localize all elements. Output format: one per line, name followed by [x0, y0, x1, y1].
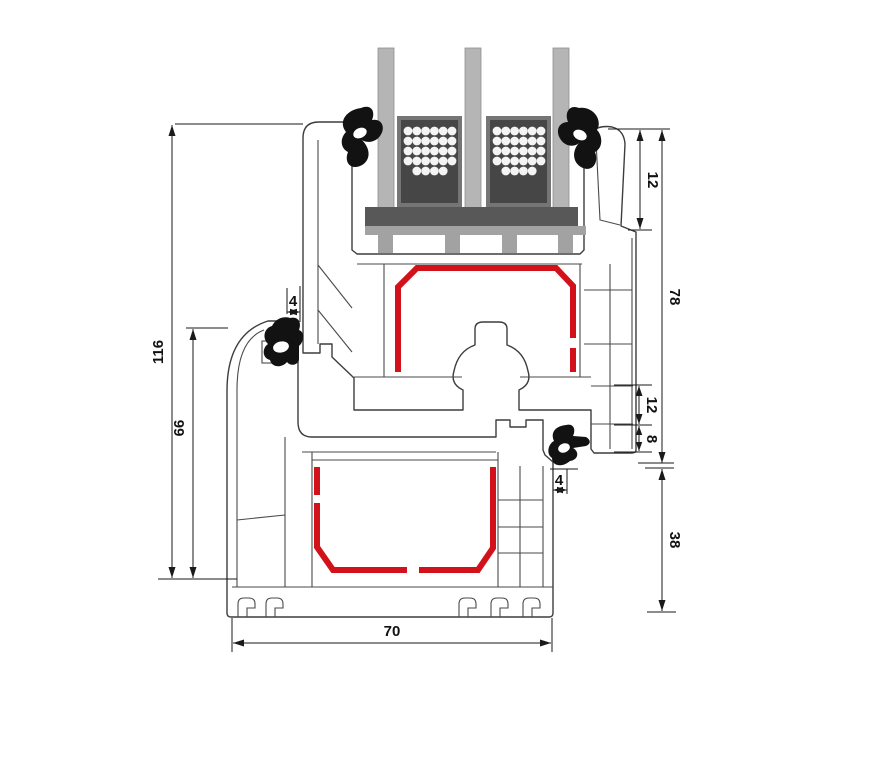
desiccant-dot — [439, 157, 448, 166]
desiccant-dot — [510, 147, 519, 156]
desiccant-dot — [448, 137, 457, 146]
glazing-packer — [558, 235, 573, 253]
desiccant-dot — [537, 157, 546, 166]
dim-label-12-mid: 12 — [643, 397, 660, 414]
desiccant-dot — [412, 127, 421, 136]
desiccant-dot — [493, 157, 502, 166]
desiccant-dot — [501, 127, 510, 136]
desiccant-dot — [412, 157, 421, 166]
desiccant-dot — [448, 127, 457, 136]
dim-label-4-bottom: 4 — [555, 472, 564, 489]
desiccant-dot — [430, 167, 439, 176]
desiccant-dot — [519, 147, 528, 156]
desiccant-dot — [439, 147, 448, 156]
desiccant-dot — [439, 127, 448, 136]
desiccant-dot — [439, 137, 448, 146]
desiccant-dot — [510, 137, 519, 146]
desiccant-dot — [519, 167, 528, 176]
desiccant-dot — [421, 147, 430, 156]
desiccant-dot — [430, 157, 439, 166]
dimension-top-gasket-gap: 4 — [287, 286, 300, 322]
desiccant-dot — [412, 137, 421, 146]
desiccant-dot — [528, 167, 537, 176]
desiccant-dot — [537, 147, 546, 156]
desiccant-dot — [501, 157, 510, 166]
desiccant-dot — [528, 137, 537, 146]
dimension-profile-depth: 70 — [232, 618, 552, 652]
desiccant-dot — [404, 127, 413, 136]
dim-label-66: 66 — [171, 420, 188, 437]
glazing-bridge — [365, 226, 586, 235]
dim-label-4-top: 4 — [289, 293, 298, 310]
desiccant-dot — [501, 137, 510, 146]
desiccant-dot — [493, 127, 502, 136]
desiccant-dot — [493, 147, 502, 156]
glazing-unit — [365, 48, 586, 253]
desiccant-dot — [412, 147, 421, 156]
desiccant-dot — [412, 167, 421, 176]
desiccant-dot — [421, 137, 430, 146]
desiccant-dot — [404, 157, 413, 166]
desiccant-dot — [510, 157, 519, 166]
desiccant-dot — [404, 147, 413, 156]
desiccant-dot — [519, 157, 528, 166]
dimension-frame-outer-height: 38 — [645, 468, 683, 612]
desiccant-dot — [439, 167, 448, 176]
desiccant-dot — [501, 147, 510, 156]
desiccant-dot — [519, 127, 528, 136]
desiccant-dot — [528, 127, 537, 136]
desiccant-dot — [519, 137, 528, 146]
desiccant-dot — [448, 157, 457, 166]
dimension-bottom-gasket-gap: 4 — [550, 469, 578, 494]
desiccant-dot — [448, 147, 457, 156]
dim-label-12-top: 12 — [644, 172, 661, 189]
glass-pane-middle — [465, 48, 481, 210]
desiccant-dot — [421, 127, 430, 136]
desiccant-dot — [421, 167, 430, 176]
dim-label-78: 78 — [666, 289, 683, 306]
glazing-packer — [502, 235, 517, 253]
desiccant-dot — [528, 147, 537, 156]
window-cross-section-diagram: 116 66 4 12 — [0, 0, 877, 766]
desiccant-dot — [421, 157, 430, 166]
desiccant-dot — [510, 127, 519, 136]
desiccant-dot — [430, 147, 439, 156]
desiccant-dot — [430, 127, 439, 136]
window-cross-section-page: 116 66 4 12 — [0, 0, 877, 766]
dim-label-8: 8 — [643, 435, 660, 443]
desiccant-dot — [501, 167, 510, 176]
desiccant-dot — [493, 137, 502, 146]
desiccant-dot — [404, 137, 413, 146]
desiccant-dot — [510, 167, 519, 176]
dim-label-116: 116 — [150, 340, 167, 364]
desiccant-dot — [537, 127, 546, 136]
dim-label-38: 38 — [666, 532, 683, 549]
glazing-packer — [378, 235, 393, 253]
desiccant-dot — [537, 137, 546, 146]
desiccant-dot — [528, 157, 537, 166]
dimension-frame-height: 66 — [171, 328, 228, 578]
desiccant-dot — [430, 137, 439, 146]
setting-block — [365, 207, 578, 226]
glazing-packer — [445, 235, 460, 253]
dim-label-70: 70 — [384, 623, 401, 640]
